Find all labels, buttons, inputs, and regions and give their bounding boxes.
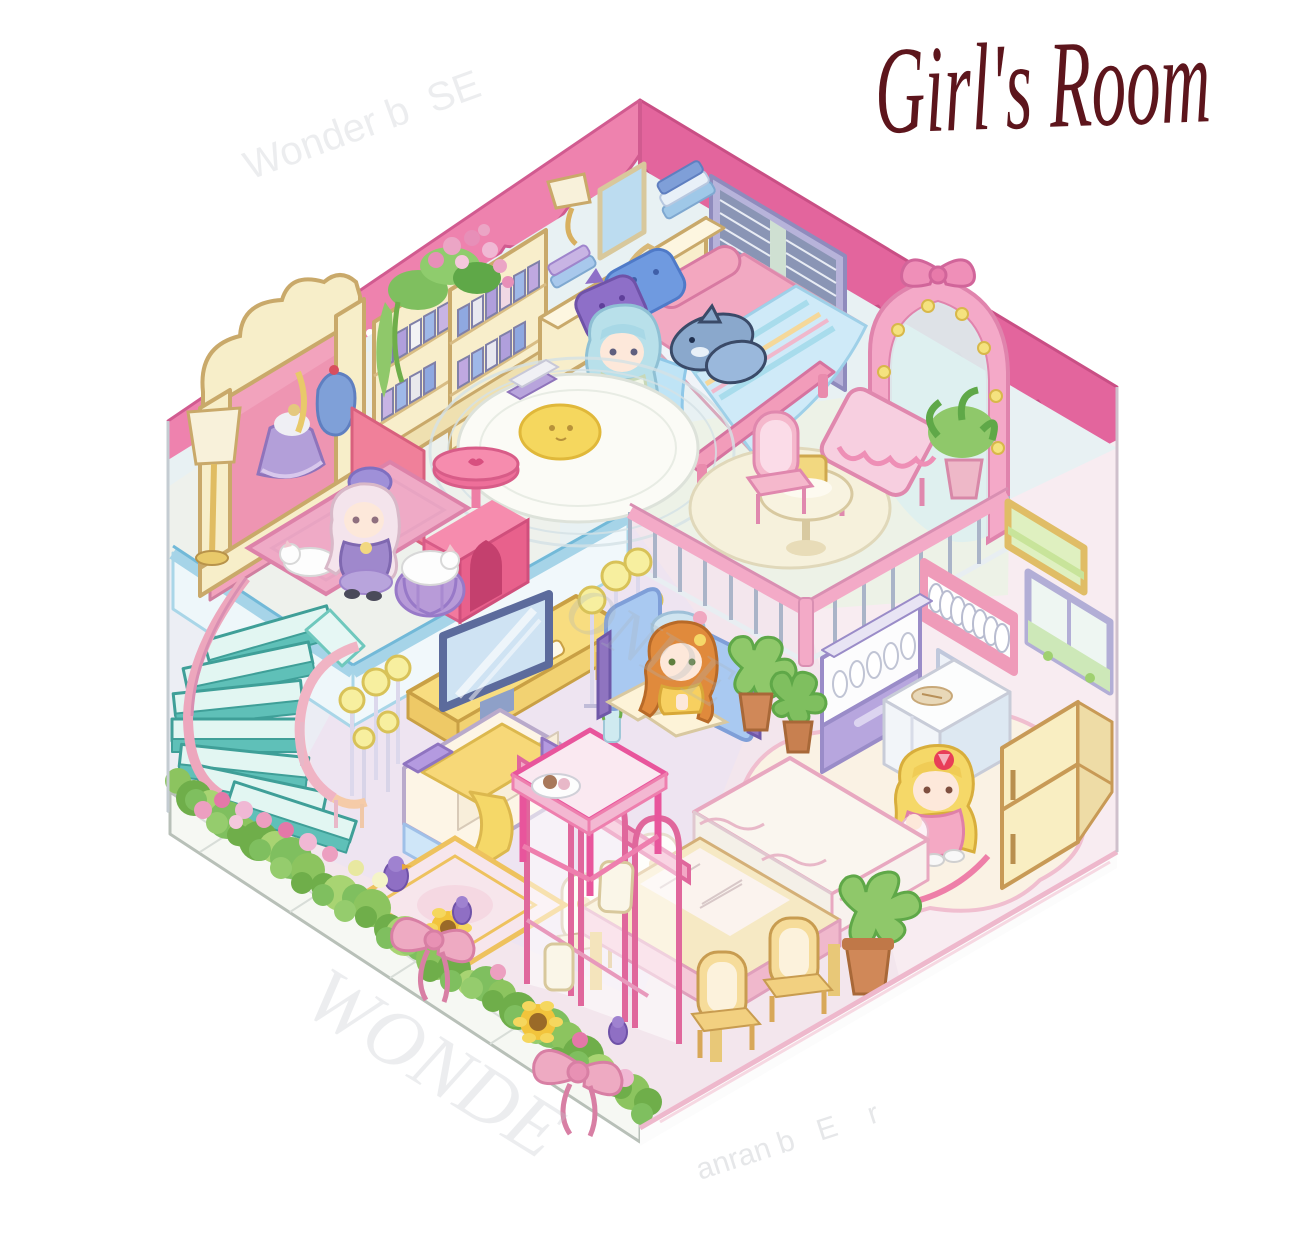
- svg-text:Girl's Room: Girl's Room: [873, 10, 1213, 160]
